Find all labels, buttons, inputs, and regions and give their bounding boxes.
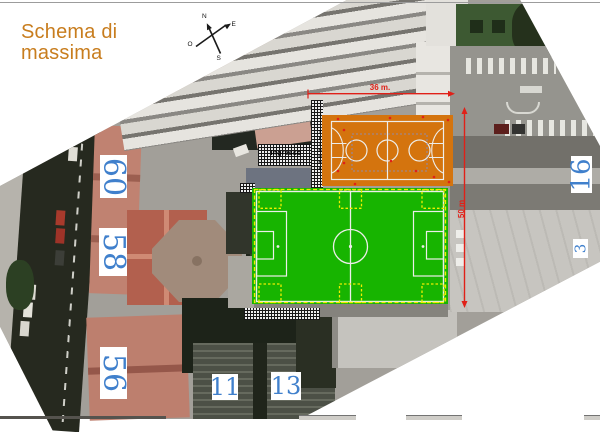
- stands-label: Tribuna: [311, 127, 323, 175]
- street-number-58: 58: [99, 228, 127, 276]
- street-number-text: 11: [210, 375, 241, 399]
- street-number-text: 56: [99, 354, 129, 392]
- soccer-field: [252, 188, 448, 304]
- street-number-text: 58: [98, 233, 128, 271]
- title-line-1: Schema di: [21, 22, 117, 43]
- bottom-edge-artifact: [406, 415, 462, 420]
- street-number-13: 13: [271, 372, 301, 400]
- compass-icon: [196, 23, 231, 53]
- street-number-56: 56: [100, 347, 127, 399]
- basketball-court: [322, 115, 453, 186]
- street-number-16: 16: [571, 156, 592, 193]
- street-number-3: 3: [573, 239, 588, 258]
- compass-label-east: E: [232, 22, 236, 29]
- street-number-text: 13: [271, 374, 302, 398]
- compass-label-north: N: [202, 14, 207, 21]
- schema-page: { "title": {"line1": "Schema di", "line2…: [0, 0, 600, 419]
- street-number-text: 16: [569, 158, 595, 191]
- dimension-50m-label: 50 m: [458, 192, 466, 226]
- title-line-2: massima: [21, 43, 117, 64]
- street-number-text: 3: [573, 244, 588, 254]
- street-number-11: 11: [212, 374, 238, 400]
- top-rule: [0, 2, 600, 3]
- street-number-60: 60: [100, 155, 127, 198]
- bottom-edge-artifact: [299, 415, 356, 420]
- compass-label-south: S: [217, 56, 221, 63]
- dimension-36m-label: 36 m.: [358, 84, 402, 92]
- street-number-text: 60: [99, 157, 129, 195]
- bottom-edge-artifact: [584, 415, 600, 420]
- entrance-label: Ingresso: [263, 150, 309, 157]
- page-title: Schema di massima: [21, 22, 117, 64]
- compass-label-west: O: [188, 42, 193, 49]
